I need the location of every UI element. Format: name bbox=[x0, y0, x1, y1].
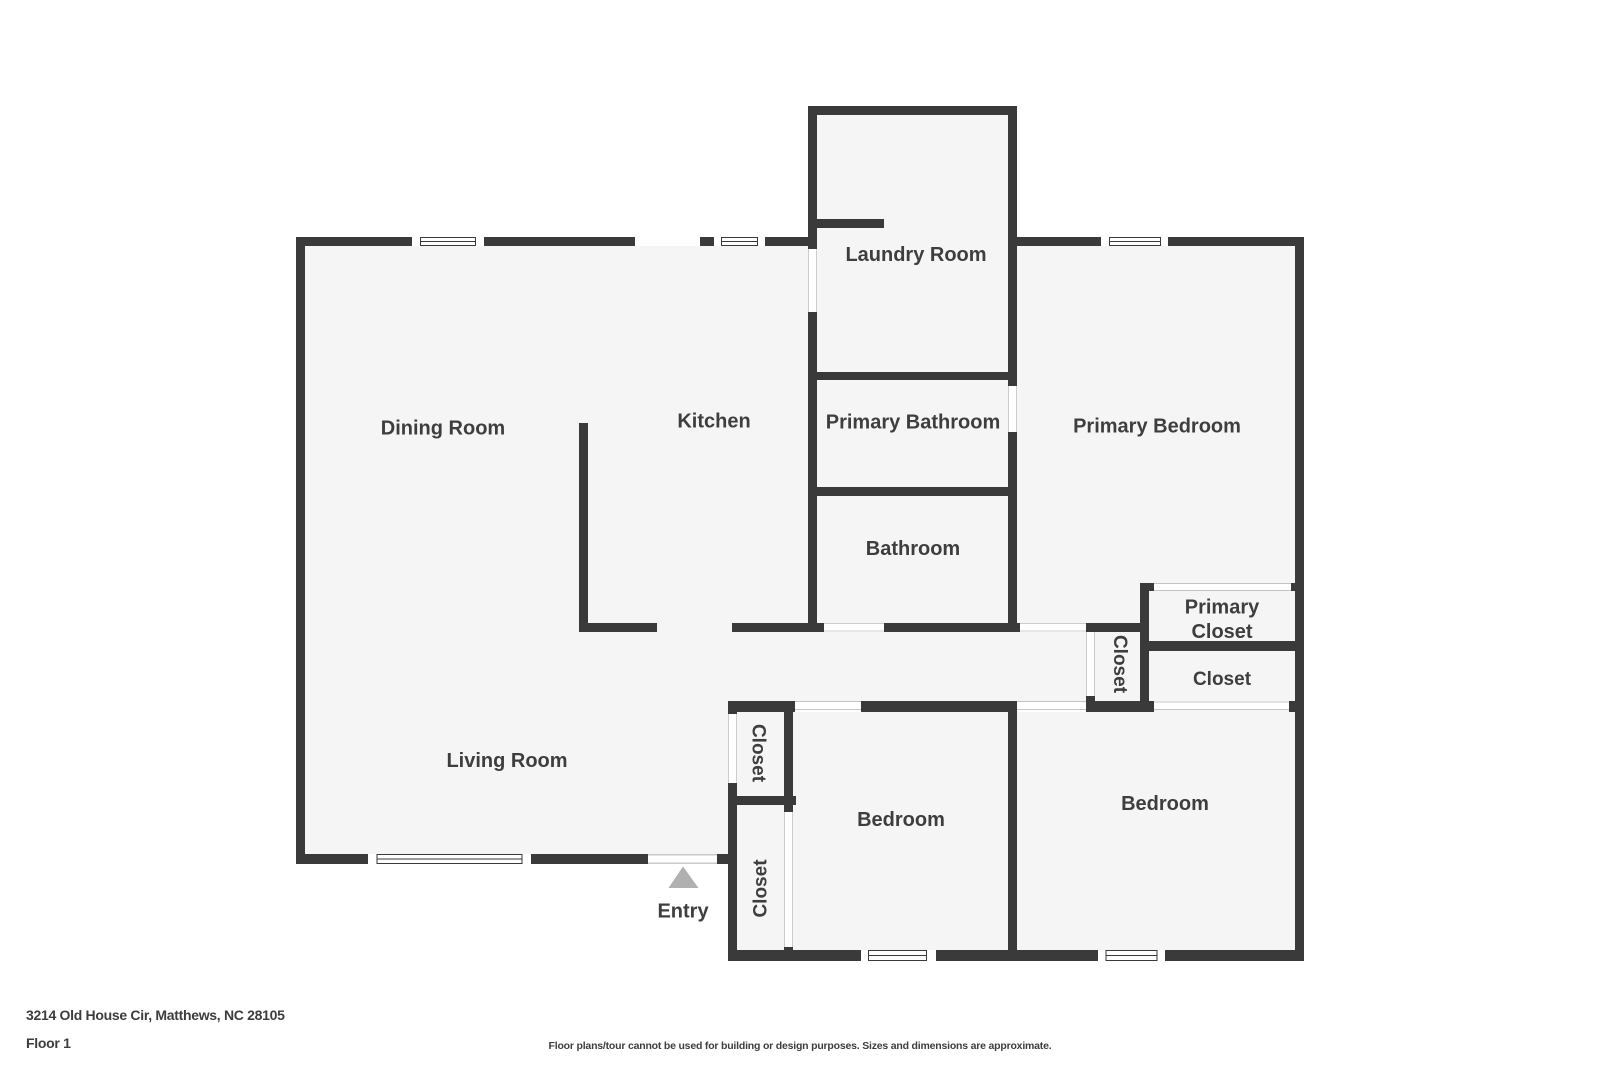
svg-text:Kitchen: Kitchen bbox=[677, 411, 750, 433]
svg-text:Closet: Closet bbox=[748, 724, 769, 783]
svg-text:Living Room: Living Room bbox=[446, 750, 567, 772]
svg-text:Primary: Primary bbox=[1185, 597, 1260, 619]
svg-text:Laundry Room: Laundry Room bbox=[845, 244, 986, 266]
svg-text:Entry: Entry bbox=[657, 901, 709, 923]
svg-text:Closet: Closet bbox=[1193, 669, 1252, 690]
svg-text:Bathroom: Bathroom bbox=[866, 538, 960, 560]
svg-text:Bedroom: Bedroom bbox=[1121, 793, 1209, 815]
svg-text:Primary Bedroom: Primary Bedroom bbox=[1073, 416, 1241, 438]
svg-text:Dining Room: Dining Room bbox=[381, 418, 505, 440]
svg-text:Primary Bathroom: Primary Bathroom bbox=[826, 412, 1001, 434]
svg-text:Closet: Closet bbox=[1191, 621, 1252, 643]
svg-text:Bedroom: Bedroom bbox=[857, 809, 945, 831]
svg-text:Closet: Closet bbox=[751, 859, 772, 918]
svg-text:Closet: Closet bbox=[1109, 635, 1130, 694]
